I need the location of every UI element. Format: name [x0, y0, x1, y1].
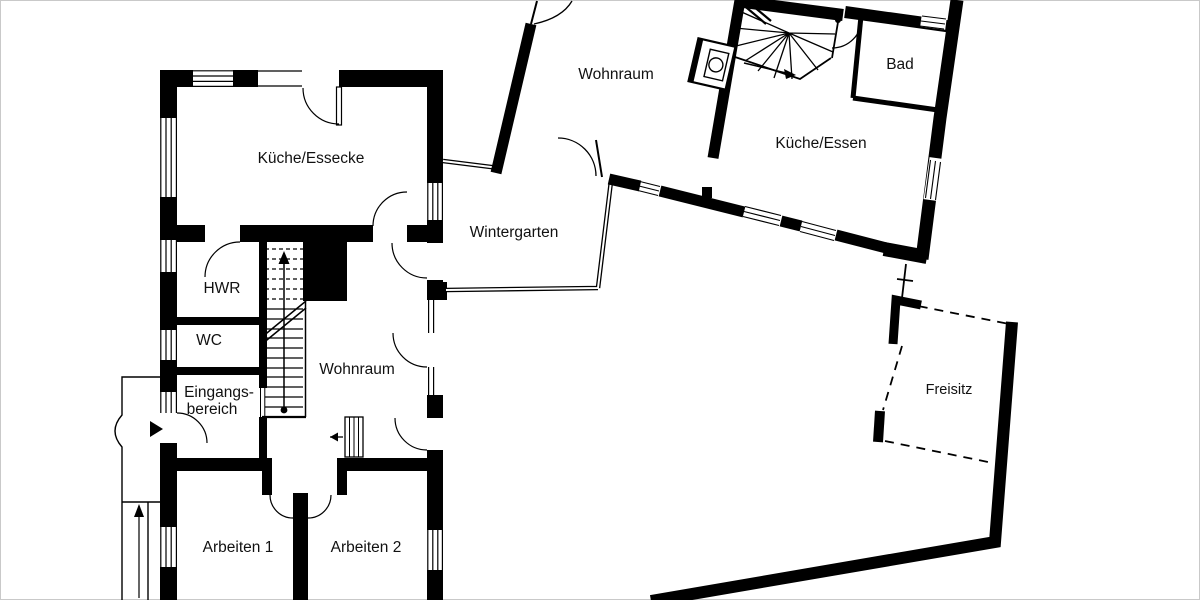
wall-hall-south-right: [347, 458, 443, 471]
door-jamb-right: [337, 458, 347, 495]
room-label-arbeiten-2: Arbeiten 2: [331, 539, 402, 556]
room-label-wintergarten: Wintergarten: [470, 224, 559, 241]
terrace-stub-wall: [878, 411, 880, 442]
window-icon: [427, 183, 443, 220]
room-label-eingangsbereich-2: bereich: [187, 401, 238, 418]
wall-arbeiten-divider: [293, 493, 308, 600]
door-jamb-left: [262, 458, 272, 495]
window-icon: [160, 118, 177, 197]
glazing-panel: [258, 70, 302, 87]
wall-stub: [702, 187, 712, 198]
glazing-panel: [427, 300, 443, 333]
stair-start-dot: [281, 407, 288, 414]
room-label-wohnraum-lower: Wohnraum: [319, 361, 395, 378]
room-label-wc: WC: [196, 332, 222, 349]
room-label-kueche-essecke: Küche/Essecke: [258, 150, 365, 167]
window-icon: [160, 527, 177, 567]
glazing-panel: [427, 367, 443, 395]
wall-south-angled: [781, 221, 801, 226]
window-icon: [160, 240, 177, 272]
glazing-panel: [259, 388, 267, 417]
window-icon: [160, 392, 177, 413]
chimney-block: [303, 225, 347, 301]
room-label-wohnraum-upper: Wohnraum: [578, 66, 654, 83]
wall-south-angled: [609, 179, 640, 186]
window-icon: [160, 330, 177, 360]
floor-plan: Küche/Essecke Wohnraum Bad Küche/Essen W…: [0, 0, 1200, 600]
room-label-eingangsbereich-1: Eingangs-: [184, 384, 254, 401]
room-label-arbeiten-1: Arbeiten 1: [203, 539, 274, 556]
room-label-bad: Bad: [886, 56, 914, 73]
wintergarten-attach-block: [427, 282, 447, 300]
room-label-freisitz: Freisitz: [926, 382, 973, 398]
room-label-hwr: HWR: [203, 280, 240, 297]
wall-hall-south-left: [160, 458, 262, 471]
stair-newel-dot: [835, 17, 841, 23]
window-icon: [193, 70, 233, 87]
floor-plan-page: Küche/Essecke Wohnraum Bad Küche/Essen W…: [0, 0, 1200, 600]
wall-stair-west: [259, 242, 267, 458]
page-border: [1, 1, 1200, 600]
window-icon: [427, 530, 443, 570]
fireplace-icon: [689, 38, 736, 89]
room-label-kueche-essen: Küche/Essen: [775, 135, 866, 152]
wall-wc-entry: [177, 367, 261, 375]
corner-block: [884, 249, 927, 257]
wall-hwr-wc: [177, 317, 261, 325]
